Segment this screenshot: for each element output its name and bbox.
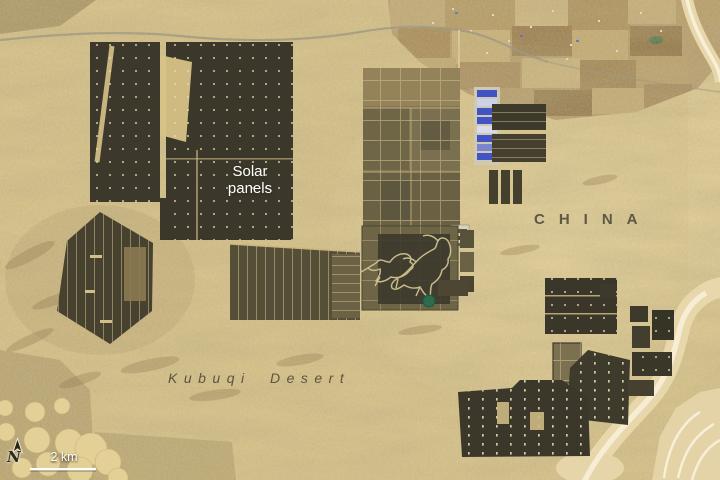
scale-bar-label: 2 km — [36, 450, 92, 464]
desert-label: Kubuqi Desert — [168, 370, 350, 386]
solar-field-center-north — [363, 68, 460, 236]
reservoir-pond — [423, 295, 435, 307]
satellite-image: Solar panels CHINA Kubuqi Desert 2 km N — [0, 0, 720, 480]
solar-panels-label: Solar panels — [206, 163, 294, 198]
horse-solar-field — [361, 226, 474, 310]
north-label: N — [7, 448, 21, 466]
country-label: CHINA — [534, 211, 652, 228]
scale-bar — [30, 468, 96, 472]
satellite-canvas — [0, 0, 720, 480]
solar-field-center — [230, 244, 360, 320]
